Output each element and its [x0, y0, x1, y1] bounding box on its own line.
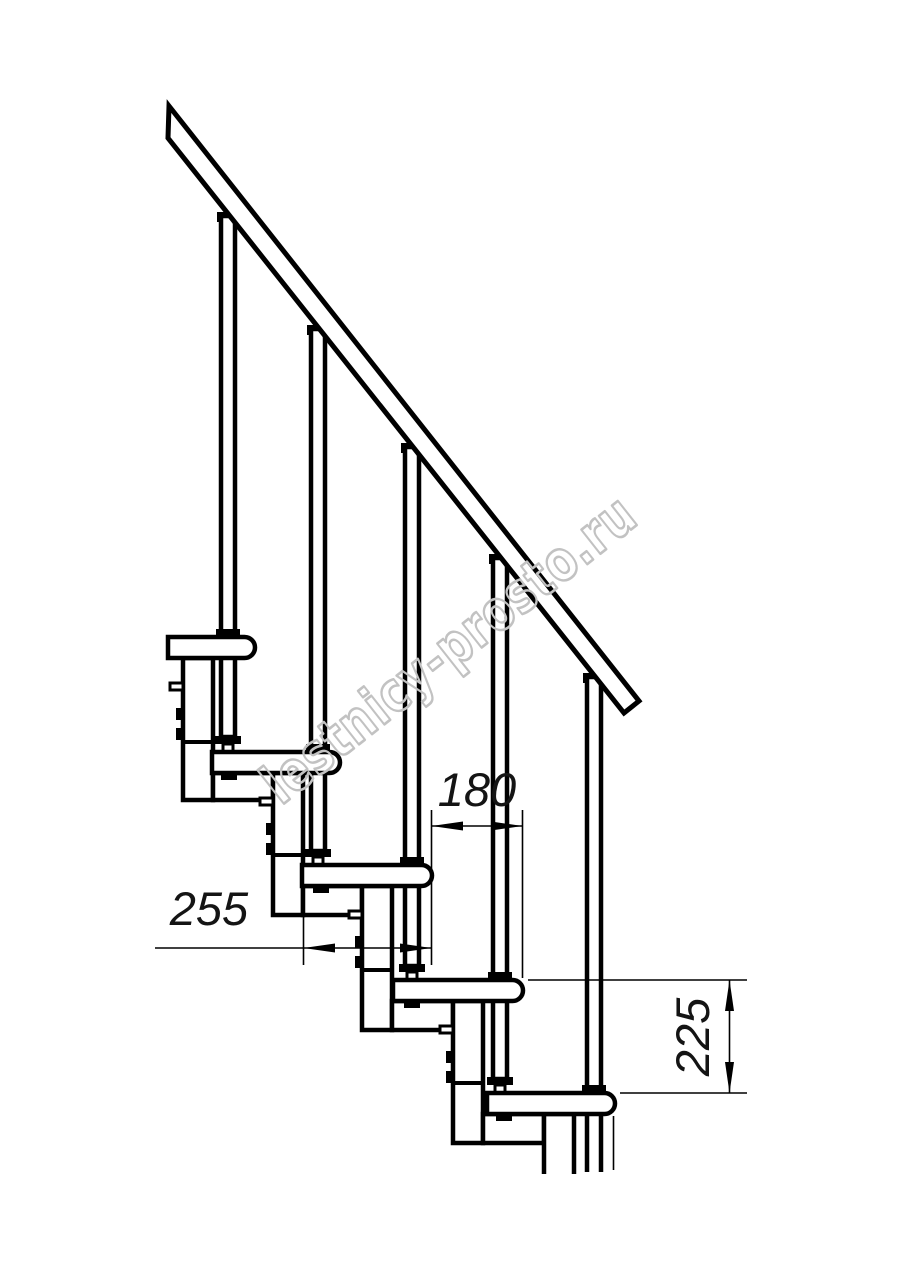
column-1-clip-b — [176, 728, 183, 740]
column-2-bracket — [260, 798, 273, 805]
tread-2-underside-tab — [221, 774, 237, 780]
tread-4 — [393, 980, 523, 1001]
column-4-body — [453, 1001, 483, 1143]
column-4-clip-a — [446, 1051, 453, 1063]
column-2-clip-a — [266, 823, 273, 835]
dim-225-arrow-bottom — [725, 1062, 734, 1093]
column-4-bracket — [440, 1026, 453, 1033]
tread-1-baluster-collar — [216, 629, 240, 637]
tread-5-underside-tab — [496, 1115, 512, 1121]
staircase-elevation-drawing: 180 255 225 lestnicy-prosto.ru — [0, 0, 914, 1280]
tread-3-underside-tab — [313, 887, 329, 893]
dim-225-label: 225 — [666, 997, 719, 1077]
column-1-bracket — [170, 683, 183, 690]
tread-4-baluster-collar — [488, 972, 512, 980]
column-3-bracket — [349, 911, 362, 918]
tread-5 — [487, 1093, 615, 1114]
tread-3-baluster-collar — [400, 857, 424, 865]
column-4-foot — [483, 1114, 544, 1143]
technical-drawing-canvas: 180 255 225 lestnicy-prosto.ru — [0, 0, 914, 1280]
dimension-225: 225 — [528, 980, 747, 1093]
column-3-clip-a — [355, 936, 362, 948]
support-column-5 — [544, 1114, 574, 1174]
support-column-3 — [349, 886, 453, 1030]
column-3-body — [362, 886, 392, 1030]
tread-5-baluster-collar — [582, 1085, 606, 1093]
column-2-clip-b — [266, 843, 273, 855]
column-4-clip-b — [446, 1071, 453, 1083]
column-1-clip-a — [176, 708, 183, 720]
dim-255-arrow-left — [304, 944, 336, 953]
dim-255-label: 255 — [169, 882, 249, 935]
baluster-1 — [215, 212, 241, 752]
dim-180-arrow-left — [432, 822, 464, 831]
tread-1 — [168, 637, 255, 658]
column-1-body — [183, 658, 213, 800]
column-3-clip-b — [355, 956, 362, 968]
column-5-body — [544, 1114, 574, 1174]
tread-3 — [302, 865, 432, 886]
tread-4-underside-tab — [404, 1002, 420, 1008]
dim-225-arrow-top — [725, 980, 734, 1011]
dim-180-label: 180 — [438, 763, 516, 816]
